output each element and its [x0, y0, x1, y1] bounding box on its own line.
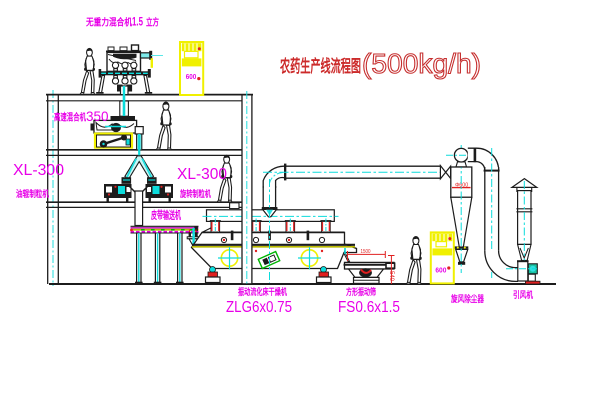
svg-text:高速混合机: 高速混合机 — [54, 112, 86, 124]
svg-text:XL-300: XL-300 — [13, 162, 64, 179]
svg-text:1500: 1500 — [361, 249, 371, 255]
svg-text:油辊制粒机: 油辊制粒机 — [16, 188, 49, 199]
svg-text:ZLG6x0.75: ZLG6x0.75 — [226, 299, 292, 316]
svg-text:540: 540 — [388, 271, 394, 282]
svg-text:农药生产线流程图: 农药生产线流程图 — [279, 56, 361, 76]
svg-text:皮带输送机: 皮带输送机 — [150, 209, 181, 222]
svg-text:FS0.6x1.5: FS0.6x1.5 — [338, 299, 400, 316]
svg-text:350: 350 — [86, 109, 109, 124]
svg-text:方形振动筛: 方形振动筛 — [346, 286, 376, 297]
svg-text:600: 600 — [186, 72, 197, 81]
svg-text:无重力混合机: 无重力混合机 — [85, 17, 132, 29]
svg-text:立方: 立方 — [146, 17, 159, 29]
svg-text:旋风除尘器: 旋风除尘器 — [450, 293, 484, 304]
svg-text:600: 600 — [435, 265, 446, 274]
svg-text:(500kg/h): (500kg/h) — [362, 48, 481, 79]
svg-text:XL-300: XL-300 — [177, 166, 227, 183]
svg-text:1.5: 1.5 — [132, 15, 143, 29]
svg-text:振动流化床干燥机: 振动流化床干燥机 — [238, 286, 287, 297]
svg-text:引风机: 引风机 — [513, 289, 533, 300]
svg-text:旋转制粒机: 旋转制粒机 — [179, 188, 211, 199]
